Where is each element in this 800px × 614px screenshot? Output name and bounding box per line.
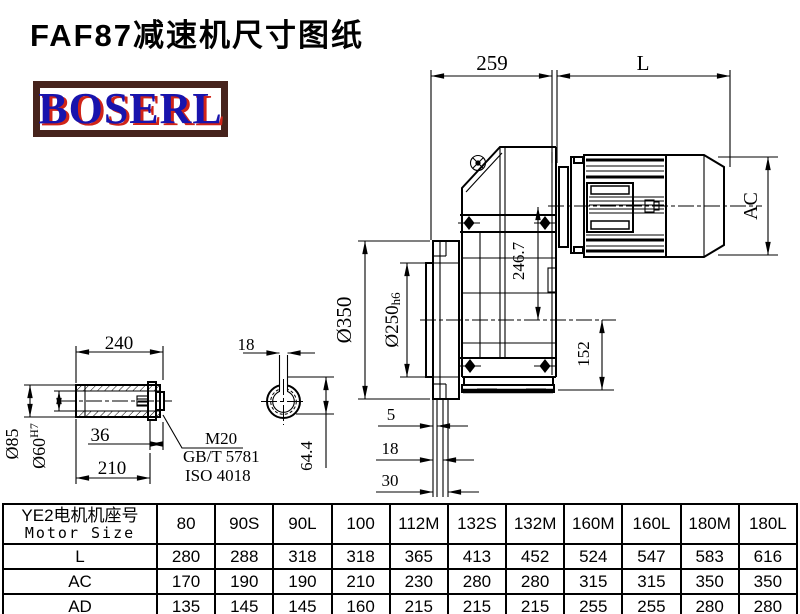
cell: 280 [157, 544, 215, 569]
row-label-AC: AC [3, 569, 157, 594]
dim-152-label: 152 [574, 341, 593, 367]
motor-size-table: YE2电机机座号 Motor Size 80 90S 90L 100 112M … [2, 503, 798, 614]
cell: 315 [564, 569, 622, 594]
cell: 280 [506, 569, 564, 594]
dim-259-label: 259 [476, 51, 508, 75]
cell: 210 [332, 569, 390, 594]
header-cn: YE2电机机座号 [4, 506, 156, 525]
cell: 524 [564, 544, 622, 569]
cell: 365 [390, 544, 448, 569]
dim-36-label: 36 [91, 425, 110, 446]
table-row-AC: AC 170 190 190 210 230 280 280 315 315 3… [3, 569, 797, 594]
cell: 280 [448, 569, 506, 594]
col-132S: 132S [448, 504, 506, 544]
cell: 215 [506, 594, 564, 614]
callout-gbt: GB/T 5781 [183, 447, 260, 466]
dim-stickout: 5 18 30 [376, 400, 479, 497]
table-row-L: L 280 288 318 318 365 413 452 524 547 58… [3, 544, 797, 569]
dim-flange: Ø350 Ø250h6 [332, 241, 430, 399]
page: FAF87减速机尺寸图纸 BOSERL 259 L [0, 0, 800, 614]
col-90L: 90L [273, 504, 331, 544]
motor-adapter [559, 157, 584, 253]
cell: 280 [739, 594, 797, 614]
cell: 547 [622, 544, 680, 569]
col-180M: 180M [681, 504, 739, 544]
bolt-symbols [458, 216, 556, 373]
gearbox-housing [458, 147, 556, 392]
dim-85-label: Ø85 [2, 429, 22, 460]
cell: 145 [215, 594, 273, 614]
cell: 288 [215, 544, 273, 569]
dim-644-label: 64.4 [297, 441, 316, 471]
nameplate-top [591, 186, 629, 194]
dim-250h6-label: Ø250h6 [382, 292, 403, 348]
col-132M: 132M [506, 504, 564, 544]
row-label-AD: AD [3, 594, 157, 614]
cell: 616 [739, 544, 797, 569]
eye-bolt-icon [471, 156, 486, 171]
row-label-L: L [3, 544, 157, 569]
dimension-drawing: 259 L AC Ø350 Ø250h6 246.7 152 [0, 0, 800, 503]
cell: 315 [622, 569, 680, 594]
dim-350-label: Ø350 [332, 297, 356, 344]
cell: 255 [564, 594, 622, 614]
col-90S: 90S [215, 504, 273, 544]
cell: 190 [273, 569, 331, 594]
cell: 318 [273, 544, 331, 569]
dim-L-label: L [637, 51, 650, 75]
table-row-AD: AD 135 145 145 160 215 215 215 255 255 2… [3, 594, 797, 614]
callout-iso: ISO 4018 [185, 466, 251, 485]
cell: 145 [273, 594, 331, 614]
cell: 280 [681, 594, 739, 614]
cell: 160 [332, 594, 390, 614]
dim-18b-label: 18 [382, 439, 399, 458]
cell: 583 [681, 544, 739, 569]
cell: 215 [448, 594, 506, 614]
shaft-side-view: 240 Ø85 Ø60H7 36 [2, 333, 260, 485]
dim-259-and-L: 259 L [431, 51, 730, 240]
dim-60h7-label: Ø60H7 [27, 423, 49, 469]
dim-246-label: 246.7 [509, 241, 528, 280]
col-100: 100 [332, 504, 390, 544]
col-112M: 112M [390, 504, 448, 544]
col-180L: 180L [739, 504, 797, 544]
dim-30-label: 30 [382, 471, 399, 490]
cell: 452 [506, 544, 564, 569]
nameplate-bottom [591, 221, 629, 229]
cell: 350 [681, 569, 739, 594]
cell: 350 [739, 569, 797, 594]
dim-5-label: 5 [387, 405, 396, 424]
cell: 135 [157, 594, 215, 614]
cell: 215 [390, 594, 448, 614]
cell: 190 [215, 569, 273, 594]
cell: 230 [390, 569, 448, 594]
col-80: 80 [157, 504, 215, 544]
col-160L: 160L [622, 504, 680, 544]
table-header-row: YE2电机机座号 Motor Size 80 90S 90L 100 112M … [3, 504, 797, 544]
header-motor-size: YE2电机机座号 Motor Size [3, 504, 157, 544]
cell: 170 [157, 569, 215, 594]
cell: 413 [448, 544, 506, 569]
header-en: Motor Size [4, 525, 156, 542]
dim-18-key-label: 18 [238, 335, 255, 354]
dim-240-label: 240 [105, 333, 134, 354]
dim-210-label: 210 [98, 458, 127, 479]
col-160M: 160M [564, 504, 622, 544]
callout-m20: M20 [205, 429, 237, 448]
cell: 318 [332, 544, 390, 569]
cell: 255 [622, 594, 680, 614]
